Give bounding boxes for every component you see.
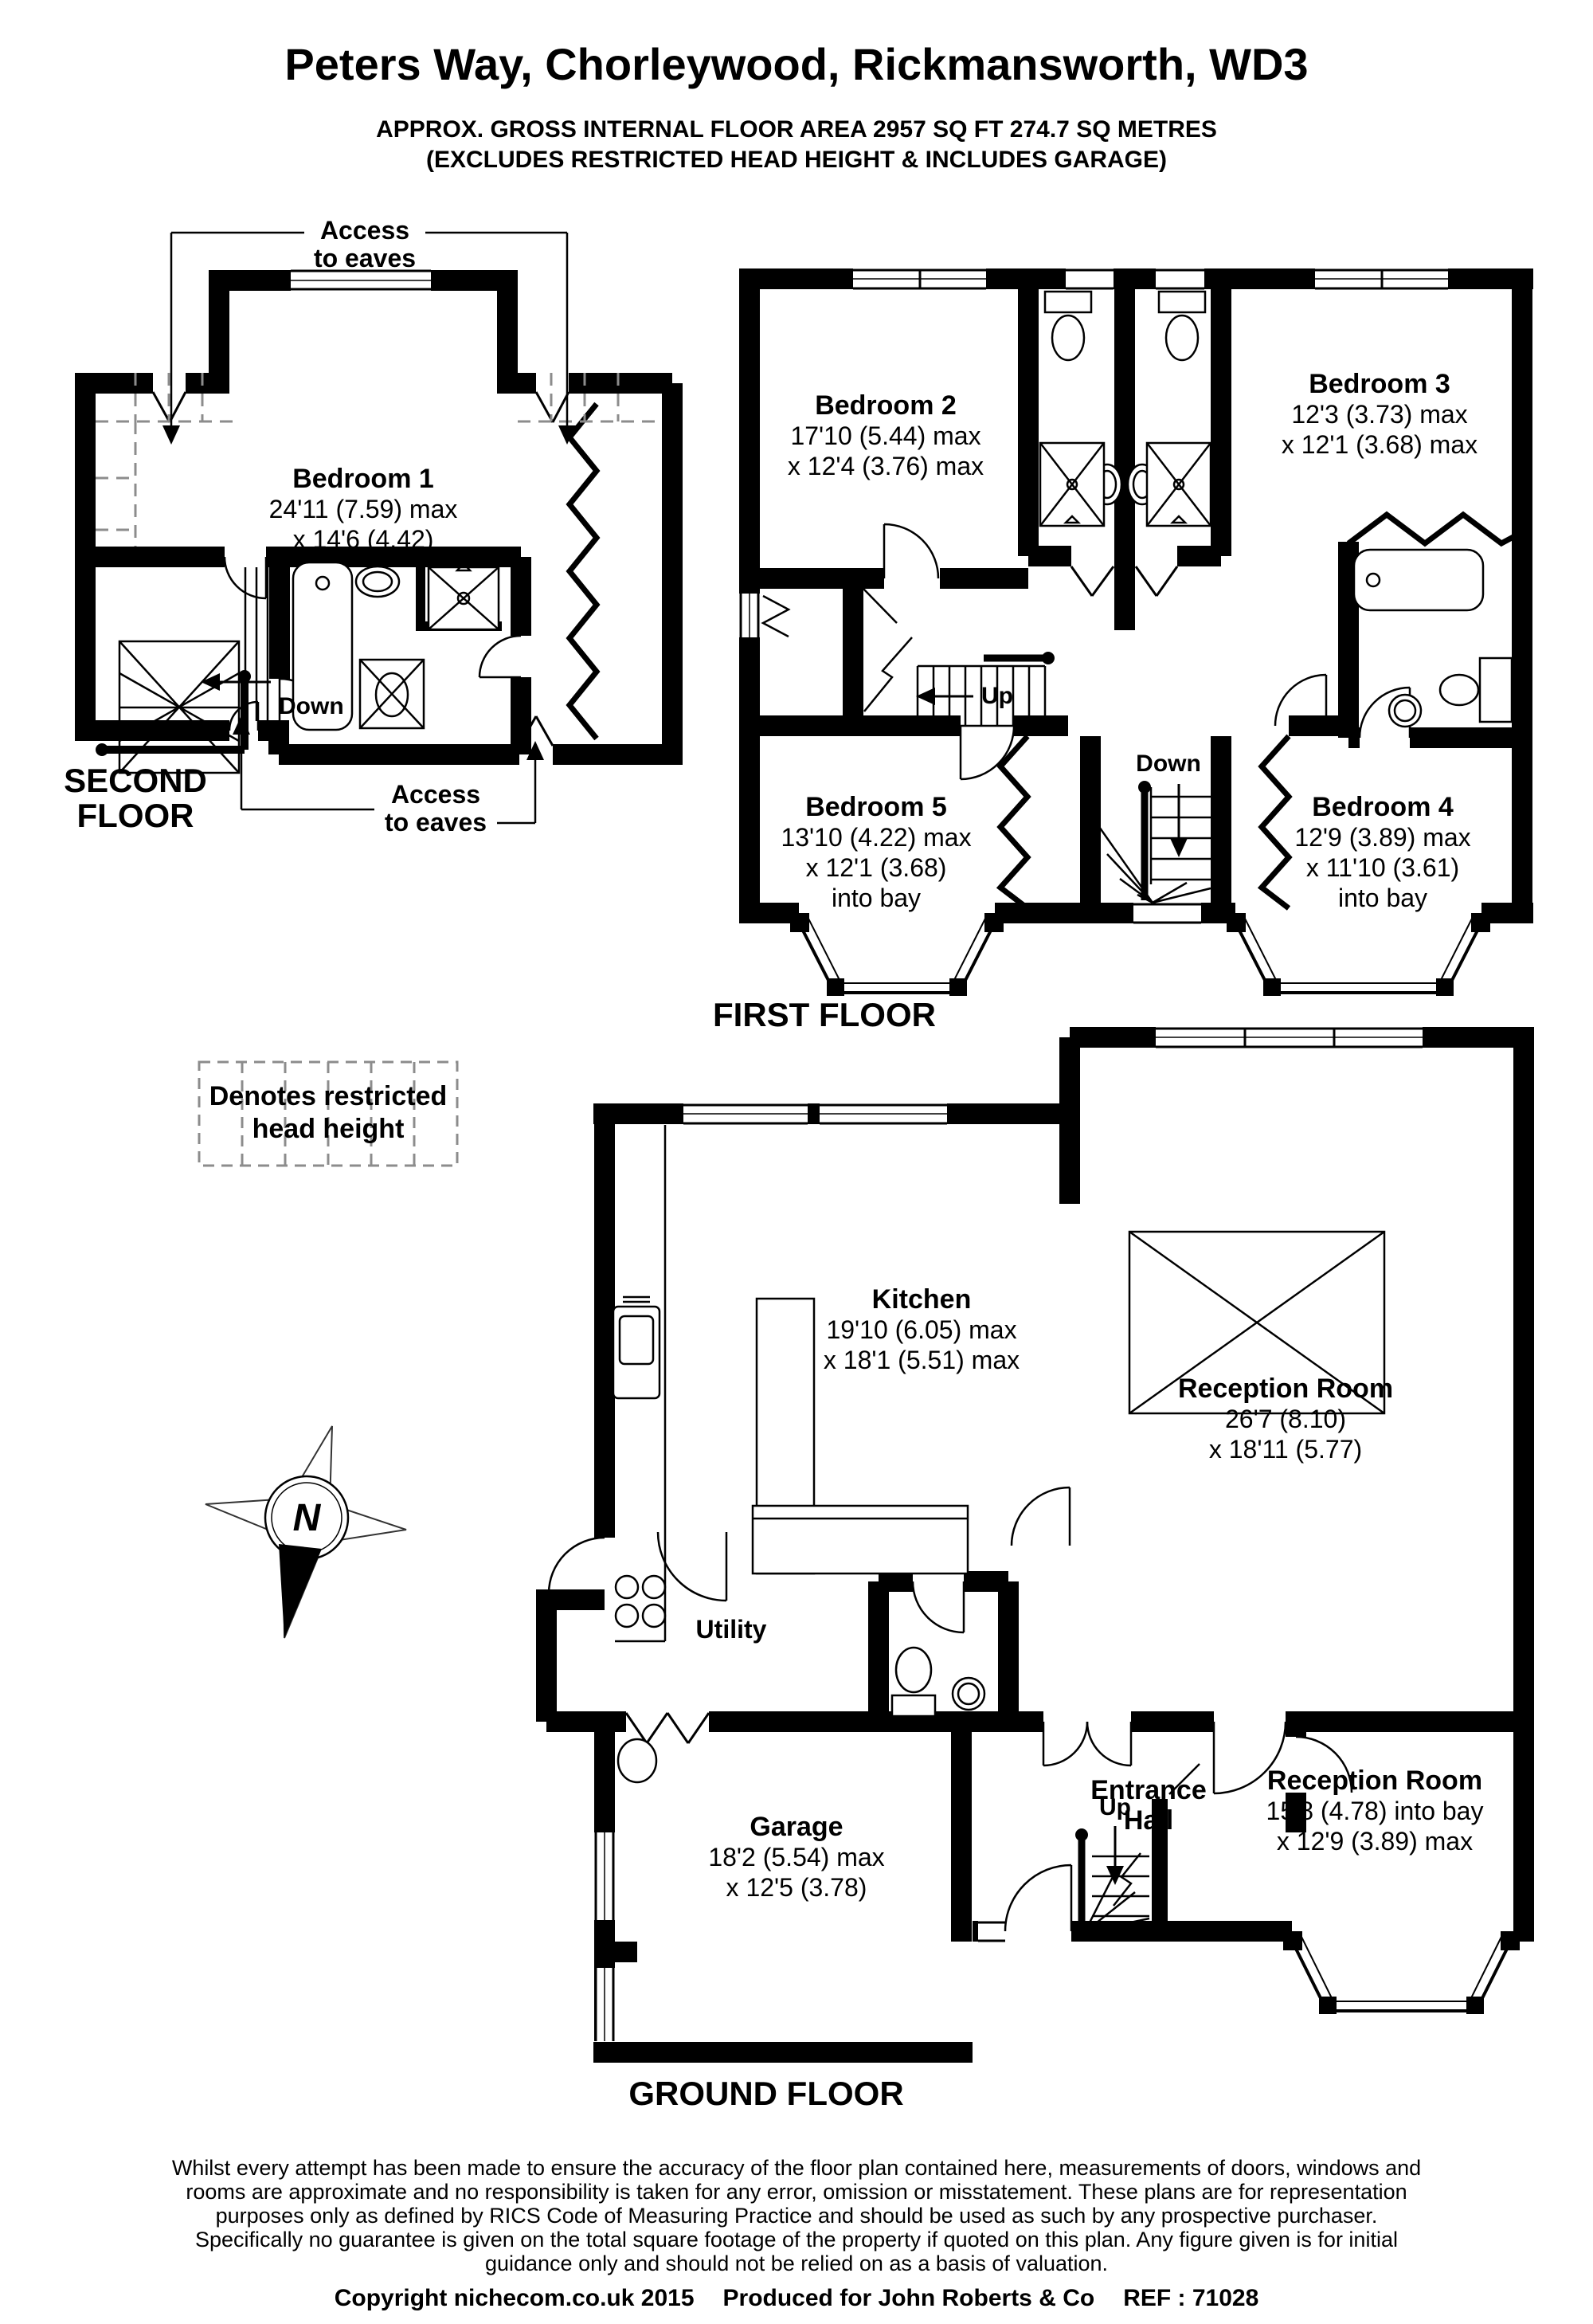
- ground-floor-walls: [536, 1037, 1534, 2052]
- staircase-down-icon: [1098, 781, 1221, 903]
- eaves-zigzag: [569, 404, 597, 739]
- access-to-eaves-top-label: Access to eaves: [314, 217, 416, 272]
- sink-icon: [953, 1678, 984, 1710]
- sink-icon: [1389, 695, 1421, 727]
- room-label-reception2: Reception Room 15'8 (4.78) into bay x 12…: [1266, 1766, 1484, 1856]
- area-subtitle-2: (EXCLUDES RESTRICTED HEAD HEIGHT & INCLU…: [426, 147, 1167, 174]
- ground-floor-plan: [536, 1028, 1534, 2052]
- restricted-head-height-legend: Denotes restricted head height: [209, 1080, 448, 1146]
- shower-icon: [416, 557, 502, 631]
- down-label-first-floor: Down: [1136, 750, 1201, 778]
- floorplan-drawing: [0, 0, 1593, 2324]
- window: [291, 269, 431, 292]
- bay-window: [790, 913, 1004, 996]
- sink-icon: [356, 566, 399, 597]
- up-label-ground-floor: Up: [1099, 1794, 1131, 1821]
- hob-icon: [616, 1576, 665, 1627]
- floorplan-page: Peters Way, Chorleywood, Rickmansworth, …: [0, 0, 1593, 2324]
- area-subtitle-1: APPROX. GROSS INTERNAL FLOOR AREA 2957 S…: [376, 116, 1217, 143]
- toilet-icon: [892, 1648, 935, 1716]
- down-arrow: [1170, 784, 1188, 857]
- worktop: [753, 1506, 968, 1574]
- room-label-garage: Garage 18'2 (5.54) max x 12'5 (3.78): [708, 1812, 884, 1903]
- second-floor-label: SECOND FLOOR: [64, 763, 207, 833]
- ground-floor-label: GROUND FLOOR: [628, 2076, 903, 2111]
- toilet-icon: [360, 660, 424, 728]
- room-label-reception1: Reception Room 26'7 (8.10) x 18'11 (5.77…: [1178, 1374, 1393, 1464]
- page-title: Peters Way, Chorleywood, Rickmansworth, …: [284, 38, 1308, 90]
- room-label-utility: Utility: [696, 1616, 767, 1644]
- room-label-bedroom2: Bedroom 2 17'10 (5.44) max x 12'4 (3.76)…: [788, 390, 984, 481]
- door-arcs: [863, 524, 1410, 779]
- kitchen-counter: [613, 1125, 665, 1641]
- tank-icon: [618, 1739, 656, 1782]
- up-label-first-floor: Up: [981, 683, 1013, 710]
- north-label: N: [293, 1496, 321, 1540]
- room-label-bedroom1: Bedroom 1 24'11 (7.59) max x 14'6 (4.42): [269, 464, 458, 555]
- copyright-line: Copyright nichecom.co.uk 2015Produced fo…: [320, 2285, 1274, 2312]
- room-label-kitchen: Kitchen 19'10 (6.05) max x 18'1 (5.51) m…: [824, 1284, 1020, 1375]
- first-floor-label: FIRST FLOOR: [713, 997, 936, 1033]
- down-label-second-floor: Down: [279, 693, 344, 720]
- bay-window: [1227, 913, 1490, 996]
- curtain-zigzag: [763, 596, 789, 637]
- room-label-bedroom5: Bedroom 5 13'10 (4.22) max x 12'1 (3.68)…: [781, 792, 971, 913]
- staircase-up-icon: [864, 637, 1055, 726]
- bath-icon: [1354, 550, 1483, 610]
- disclaimer-text: Whilst every attempt has been made to en…: [172, 2156, 1421, 2275]
- room-label-bedroom4: Bedroom 4 12'9 (3.89) max x 11'10 (3.61)…: [1294, 792, 1470, 913]
- bay-window: [1283, 1931, 1520, 2014]
- toilet-icon: [1440, 658, 1512, 722]
- room-label-bedroom3: Bedroom 3 12'3 (3.73) max x 12'1 (3.68) …: [1282, 369, 1478, 460]
- access-to-eaves-bottom-label: Access to eaves: [385, 781, 487, 837]
